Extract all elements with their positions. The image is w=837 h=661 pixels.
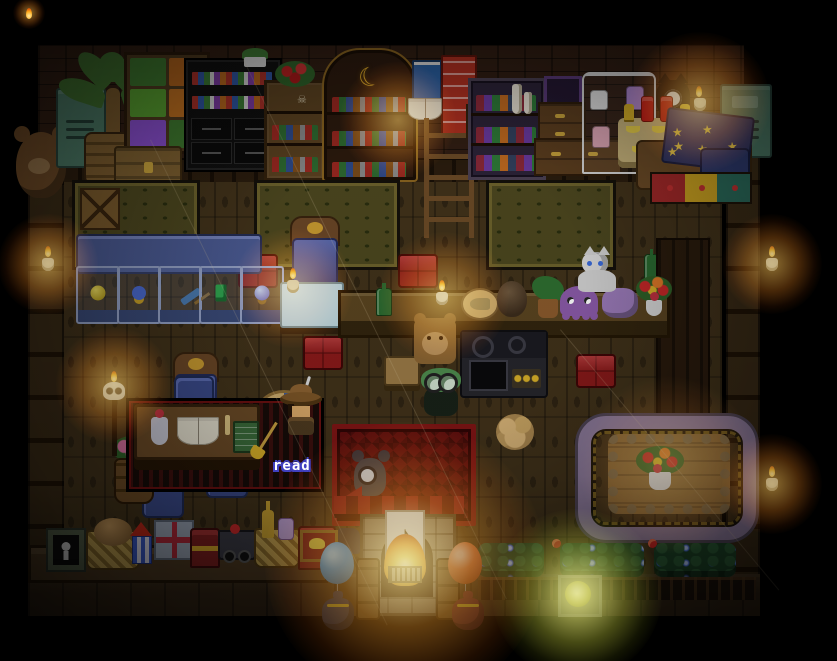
glowing-orb-lamp[interactable] (558, 575, 602, 617)
purple-jar (278, 518, 294, 540)
owl-creature[interactable] (421, 368, 461, 416)
display-case-amulet[interactable] (117, 266, 161, 324)
bouquet-vase (649, 472, 670, 490)
rocket-body (132, 536, 152, 564)
bouquet-vase (646, 300, 662, 316)
sconce-base (436, 292, 448, 305)
colorful-drawers[interactable] (650, 172, 752, 204)
player-character[interactable] (280, 384, 322, 440)
gargoyle-eye (358, 466, 377, 485)
orange-balloon[interactable] (448, 542, 482, 584)
duck-icon (309, 538, 325, 549)
flame-icon (290, 268, 296, 279)
red-cushion[interactable] (303, 336, 343, 370)
gift-bag-blue[interactable] (322, 598, 354, 630)
fish (470, 298, 490, 309)
fish-plate[interactable] (461, 288, 499, 320)
oven-door[interactable] (469, 360, 508, 391)
shelf-plant-pot (244, 57, 266, 67)
cubby-item (130, 120, 166, 148)
cubby-item (130, 89, 166, 117)
cart-cargo (230, 524, 240, 534)
drawer-knob (555, 114, 565, 118)
display-case-hammer[interactable] (158, 266, 202, 324)
wall-book-blue (412, 60, 442, 100)
stove[interactable] (460, 330, 548, 398)
melted-candles (524, 92, 532, 114)
keyhole-icon (64, 551, 69, 560)
display-case-crystal[interactable] (240, 266, 284, 324)
cat-ear (598, 246, 610, 255)
reading-table[interactable] (134, 404, 260, 460)
octopus-leg (572, 312, 580, 320)
flame-icon (45, 246, 51, 257)
sconce-base (766, 258, 778, 271)
drawer-knob (551, 152, 561, 156)
right-wall (726, 158, 760, 610)
octopus-eye (584, 297, 591, 304)
shelf-line (267, 143, 323, 146)
red-flower (552, 539, 561, 548)
ketchup-bottle (641, 96, 654, 122)
potion-row (476, 155, 536, 171)
gargoyle-wing (346, 486, 362, 496)
counter-candle (434, 282, 450, 312)
cat-body (578, 270, 616, 292)
torch-staff (112, 392, 117, 456)
table-candle (285, 270, 301, 298)
moon-potion-cabinet[interactable]: ☾ (322, 48, 418, 182)
bear-face (422, 332, 447, 355)
crescent-moon-icon: ☾ (355, 61, 385, 93)
cubby-item (130, 58, 166, 86)
drawer-yellow[interactable] (685, 174, 718, 202)
vase-with-rose (151, 417, 168, 445)
crystal-ball (255, 285, 270, 300)
locker-plate (732, 96, 758, 108)
flame-icon (111, 371, 117, 382)
player-face (292, 406, 310, 417)
flame-icon (439, 280, 445, 291)
jar-pink (592, 126, 610, 148)
wall-torch-right-lower (764, 468, 780, 496)
headboard-ornament (188, 358, 204, 370)
wood-plaque (388, 566, 422, 583)
display-case-orb[interactable] (76, 266, 120, 324)
quill (225, 415, 230, 435)
teddy-muzzle (28, 158, 50, 174)
bag-tie (327, 604, 349, 607)
shelf-drawer[interactable] (191, 142, 232, 164)
treasure-chest[interactable] (190, 528, 220, 568)
shelf-line (267, 111, 323, 114)
giant-egg[interactable] (497, 281, 527, 317)
yellow-orb (91, 285, 106, 300)
iron-fence (478, 577, 756, 600)
palm-trunk (106, 88, 120, 138)
drawer-knob (555, 132, 565, 136)
book-row (192, 96, 272, 109)
gift-box[interactable] (154, 520, 194, 560)
player-hat (280, 392, 322, 406)
red-flower (648, 539, 657, 548)
keyhole-icon (62, 542, 71, 551)
book-row (192, 72, 272, 85)
open-book-wall[interactable] (408, 98, 442, 120)
octopus-eye (567, 297, 574, 304)
plant-pot (538, 299, 557, 318)
cat-ear (584, 246, 596, 255)
octopus-leg (582, 312, 590, 320)
headboard-ornament (307, 222, 323, 234)
banana (626, 126, 640, 133)
skull-torch (101, 374, 129, 460)
cat-clock-ear (674, 73, 688, 83)
green-bottle (376, 288, 392, 316)
teddy-ear (14, 126, 30, 142)
shelf-line (324, 146, 416, 149)
cat-clock-ear (658, 73, 672, 83)
wall-torch-top-right (692, 88, 708, 114)
flame-icon (769, 246, 775, 257)
wine-bottle (262, 510, 274, 538)
game-scene: ☠ ☾ ☠ (0, 0, 837, 661)
shelf-line (471, 143, 543, 146)
cat-eye (587, 261, 592, 266)
red-roses (275, 61, 315, 87)
rocket-toy[interactable] (130, 522, 152, 566)
gold-trophy (624, 104, 634, 120)
skull-icon (103, 382, 125, 400)
potion-row (332, 162, 406, 177)
stove-buttons[interactable] (512, 369, 541, 388)
shelf-line (324, 112, 416, 115)
flower-bouquet (636, 276, 672, 316)
bread (94, 518, 132, 546)
potion-row (332, 131, 406, 146)
flower-hedge (654, 543, 736, 577)
sconce-base (287, 280, 299, 293)
jar-white (590, 90, 608, 110)
sconce-base (694, 98, 706, 111)
potion-row (476, 127, 536, 143)
hay-pile[interactable] (496, 414, 534, 450)
rocket-cone (130, 522, 152, 536)
counter-plant (532, 276, 564, 318)
bear-ear (444, 313, 456, 325)
plant-leaves (532, 276, 564, 301)
trunk-lock (144, 162, 153, 173)
shelf-line (471, 113, 543, 116)
stove-burner (508, 336, 526, 354)
flame-icon (769, 466, 775, 477)
chest-band (192, 546, 218, 551)
flame-icon (696, 86, 702, 97)
bag-tie (457, 604, 479, 607)
ribbon (156, 537, 192, 543)
open-book-on-table[interactable] (177, 417, 219, 445)
flower-hedge (560, 543, 644, 577)
owl-eye (438, 373, 458, 393)
glowing-orb (565, 581, 591, 607)
white-cat[interactable] (578, 252, 616, 294)
red-cushion[interactable] (398, 254, 438, 288)
potion-row (332, 97, 406, 112)
stove-burner (472, 336, 494, 358)
wall-torch-left (40, 248, 56, 276)
palm-frond (98, 52, 126, 82)
melted-candles (512, 84, 522, 114)
keyhole-sign[interactable] (46, 528, 86, 572)
drawer-teal[interactable] (717, 174, 750, 202)
cart-wheel (238, 550, 251, 563)
amulet (132, 286, 146, 300)
drawer-red[interactable] (652, 174, 685, 202)
bottle-basket[interactable] (254, 528, 300, 568)
octopus-leg (562, 312, 570, 320)
distant-candle (26, 8, 32, 19)
sconce-base (42, 258, 54, 271)
wall-torch-right (764, 248, 780, 276)
bear-stool[interactable] (414, 318, 456, 364)
sconce-base (766, 478, 778, 491)
bear-ear (414, 313, 426, 325)
skull-decoration: ☠ (297, 93, 307, 106)
shelf-drawer[interactable] (191, 118, 232, 140)
action-prompt: read (273, 458, 311, 474)
gargoyle-plush[interactable] (350, 448, 392, 498)
wall-crate (80, 188, 120, 230)
gift-bag-red[interactable] (452, 598, 484, 630)
cart-wheel (223, 550, 236, 563)
octopus-leg (590, 312, 598, 320)
toy-cart[interactable] (218, 530, 256, 560)
cat-eye (598, 261, 603, 266)
